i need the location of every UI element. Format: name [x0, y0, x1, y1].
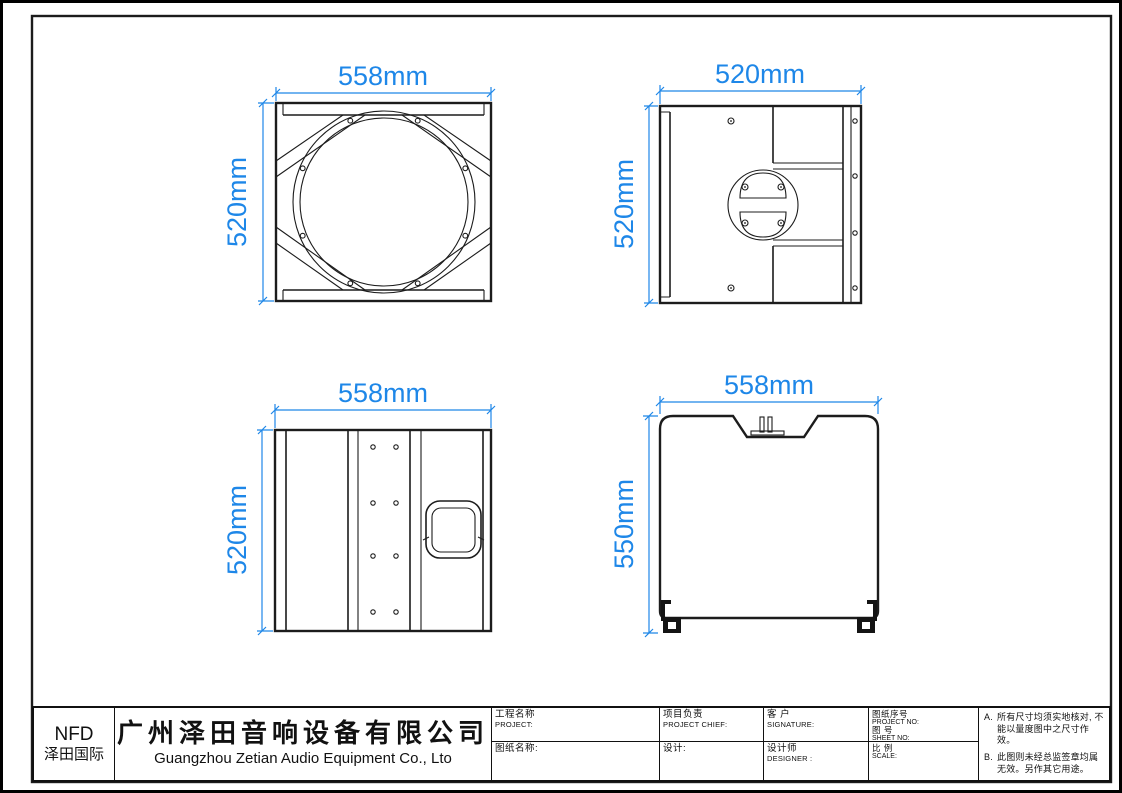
drawing-name-field: 图纸名称: — [492, 742, 659, 780]
rear-width-dimension: 520mm — [715, 59, 805, 89]
profile-height-dimension: 550mm — [609, 479, 639, 569]
company-name-en: Guangzhou Zetian Audio Equipment Co., Lt… — [154, 750, 452, 769]
logo-cell: NFD 泽田国际 — [34, 708, 115, 780]
profile-left-foot — [661, 600, 681, 633]
project-chief-field: 项目负责 PROJECT CHIEF: — [660, 708, 763, 742]
client-signature-field: 客 户 SIGNATURE: — [764, 708, 868, 742]
project-no-sheet-no-field: 图纸序号 PROJECT NO: 图 号 SHEET NO: — [869, 708, 978, 742]
side-width-dimension: 558mm — [338, 378, 428, 408]
profile-view: 558mm 550mm — [609, 370, 882, 637]
rear-panel-screws — [728, 118, 734, 291]
rear-handle-cup — [728, 170, 798, 240]
rear-dimensions: 520mm 520mm — [609, 59, 865, 307]
designer-field: 设计师 DESIGNER : — [764, 742, 868, 780]
scale-field: 比 例 SCALE: — [869, 742, 978, 780]
note-b: B. 此图则未经总监签章均属无效。另作其它用途。 — [984, 752, 1105, 775]
rear-height-dimension: 520mm — [609, 159, 639, 249]
profile-right-foot — [857, 600, 877, 633]
profile-dimensions: 558mm 550mm — [609, 370, 882, 637]
numbering-field-cell: 图纸序号 PROJECT NO: 图 号 SHEET NO: 比 例 SCALE… — [869, 708, 979, 780]
side-screw-holes — [371, 445, 398, 614]
front-width-dimension: 558mm — [338, 61, 428, 91]
side-handle — [423, 501, 484, 558]
title-block: NFD 泽田国际 广州泽田音响设备有限公司 Guangzhou Zetian A… — [32, 706, 1111, 782]
brand-name-cn: 泽田国际 — [44, 746, 104, 764]
side-view: 558mm 520mm — [222, 378, 495, 635]
front-height-dimension: 520mm — [222, 157, 252, 247]
brand-name: NFD — [54, 724, 93, 747]
rear-view: 520mm 520mm — [609, 59, 865, 307]
client-field-cell: 客 户 SIGNATURE: 设计师 DESIGNER : — [764, 708, 869, 780]
project-field-cell: 工程名称 PROJECT: 图纸名称: — [492, 708, 660, 780]
side-height-dimension: 520mm — [222, 485, 252, 575]
profile-stack-rail — [751, 417, 784, 435]
project-field: 工程名称 PROJECT: — [492, 708, 659, 742]
drawing-sheet: 558mm 520mm — [0, 0, 1122, 793]
front-view: 558mm 520mm — [222, 61, 495, 305]
company-cell: 广州泽田音响设备有限公司 Guangzhou Zetian Audio Equi… — [115, 708, 492, 780]
drawing-canvas: 558mm 520mm — [3, 3, 1122, 793]
note-a: A. 所有尺寸均须实地核对, 不能以量度图中之尺寸作效。 — [984, 712, 1105, 747]
chief-field-cell: 项目负责 PROJECT CHIEF: 设计: — [660, 708, 764, 780]
company-name-cn: 广州泽田音响设备有限公司 — [117, 720, 489, 750]
design-field: 设计: — [660, 742, 763, 780]
notes-cell: A. 所有尺寸均须实地核对, 不能以量度图中之尺寸作效。 B. 此图则未经总监签… — [979, 708, 1109, 780]
rear-right-screws — [853, 119, 857, 290]
inner-frame — [32, 16, 1111, 782]
profile-width-dimension: 558mm — [724, 370, 814, 400]
